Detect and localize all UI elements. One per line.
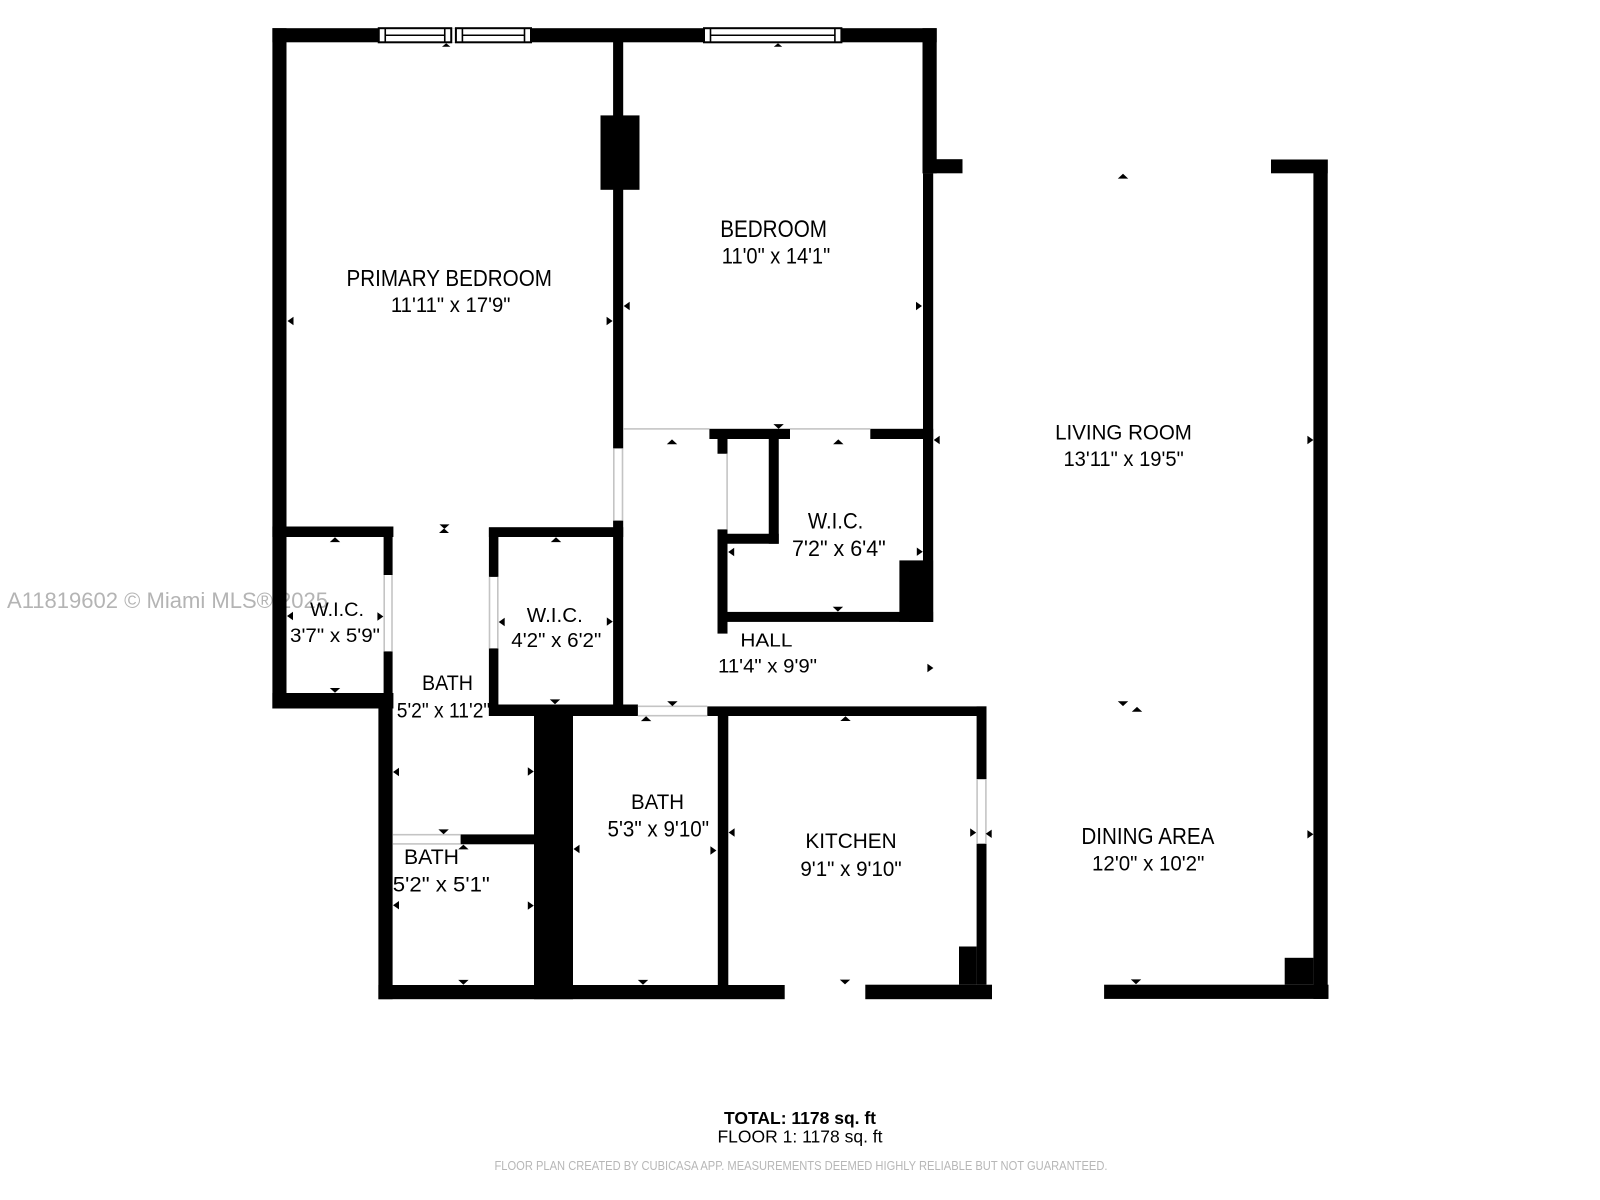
svg-text:5'2" x 11'2": 5'2" x 11'2" xyxy=(397,700,491,723)
svg-text:9'1" x 9'10": 9'1" x 9'10" xyxy=(800,857,901,881)
svg-text:4'2" x 6'2": 4'2" x 6'2" xyxy=(511,630,601,652)
svg-text:5'3" x 9'10": 5'3" x 9'10" xyxy=(608,817,710,842)
svg-text:BATH: BATH xyxy=(631,790,684,814)
svg-text:DINING AREA: DINING AREA xyxy=(1081,823,1215,849)
svg-text:W.I.C.: W.I.C. xyxy=(310,599,364,621)
svg-text:11'11" x 17'9": 11'11" x 17'9" xyxy=(391,293,511,317)
svg-text:PRIMARY BEDROOM: PRIMARY BEDROOM xyxy=(346,265,552,291)
svg-text:BEDROOM: BEDROOM xyxy=(720,216,827,243)
svg-text:FLOOR 1: 1178 sq. ft: FLOOR 1: 1178 sq. ft xyxy=(717,1127,882,1147)
svg-text:13'11" x 19'5": 13'11" x 19'5" xyxy=(1063,448,1183,471)
svg-text:HALL: HALL xyxy=(740,631,792,651)
svg-text:TOTAL: 1178 sq. ft: TOTAL: 1178 sq. ft xyxy=(724,1108,876,1128)
svg-text:5'2" x 5'1": 5'2" x 5'1" xyxy=(393,873,490,897)
svg-text:12'0" x 10'2": 12'0" x 10'2" xyxy=(1092,852,1204,876)
svg-text:KITCHEN: KITCHEN xyxy=(805,830,896,853)
svg-text:3'7" x 5'9": 3'7" x 5'9" xyxy=(290,625,380,647)
svg-text:11'4" x 9'9": 11'4" x 9'9" xyxy=(718,657,817,678)
svg-text:7'2" x 6'4": 7'2" x 6'4" xyxy=(792,536,886,561)
svg-text:BATH: BATH xyxy=(404,846,459,869)
svg-text:W.I.C.: W.I.C. xyxy=(527,605,583,627)
svg-text:W.I.C.: W.I.C. xyxy=(808,508,864,533)
svg-text:FLOOR PLAN CREATED BY CUBICASA: FLOOR PLAN CREATED BY CUBICASA APP. MEAS… xyxy=(495,1158,1108,1173)
svg-text:LIVING ROOM: LIVING ROOM xyxy=(1055,420,1192,444)
svg-text:BATH: BATH xyxy=(422,672,473,695)
svg-text:11'0" x 14'1": 11'0" x 14'1" xyxy=(722,244,830,269)
